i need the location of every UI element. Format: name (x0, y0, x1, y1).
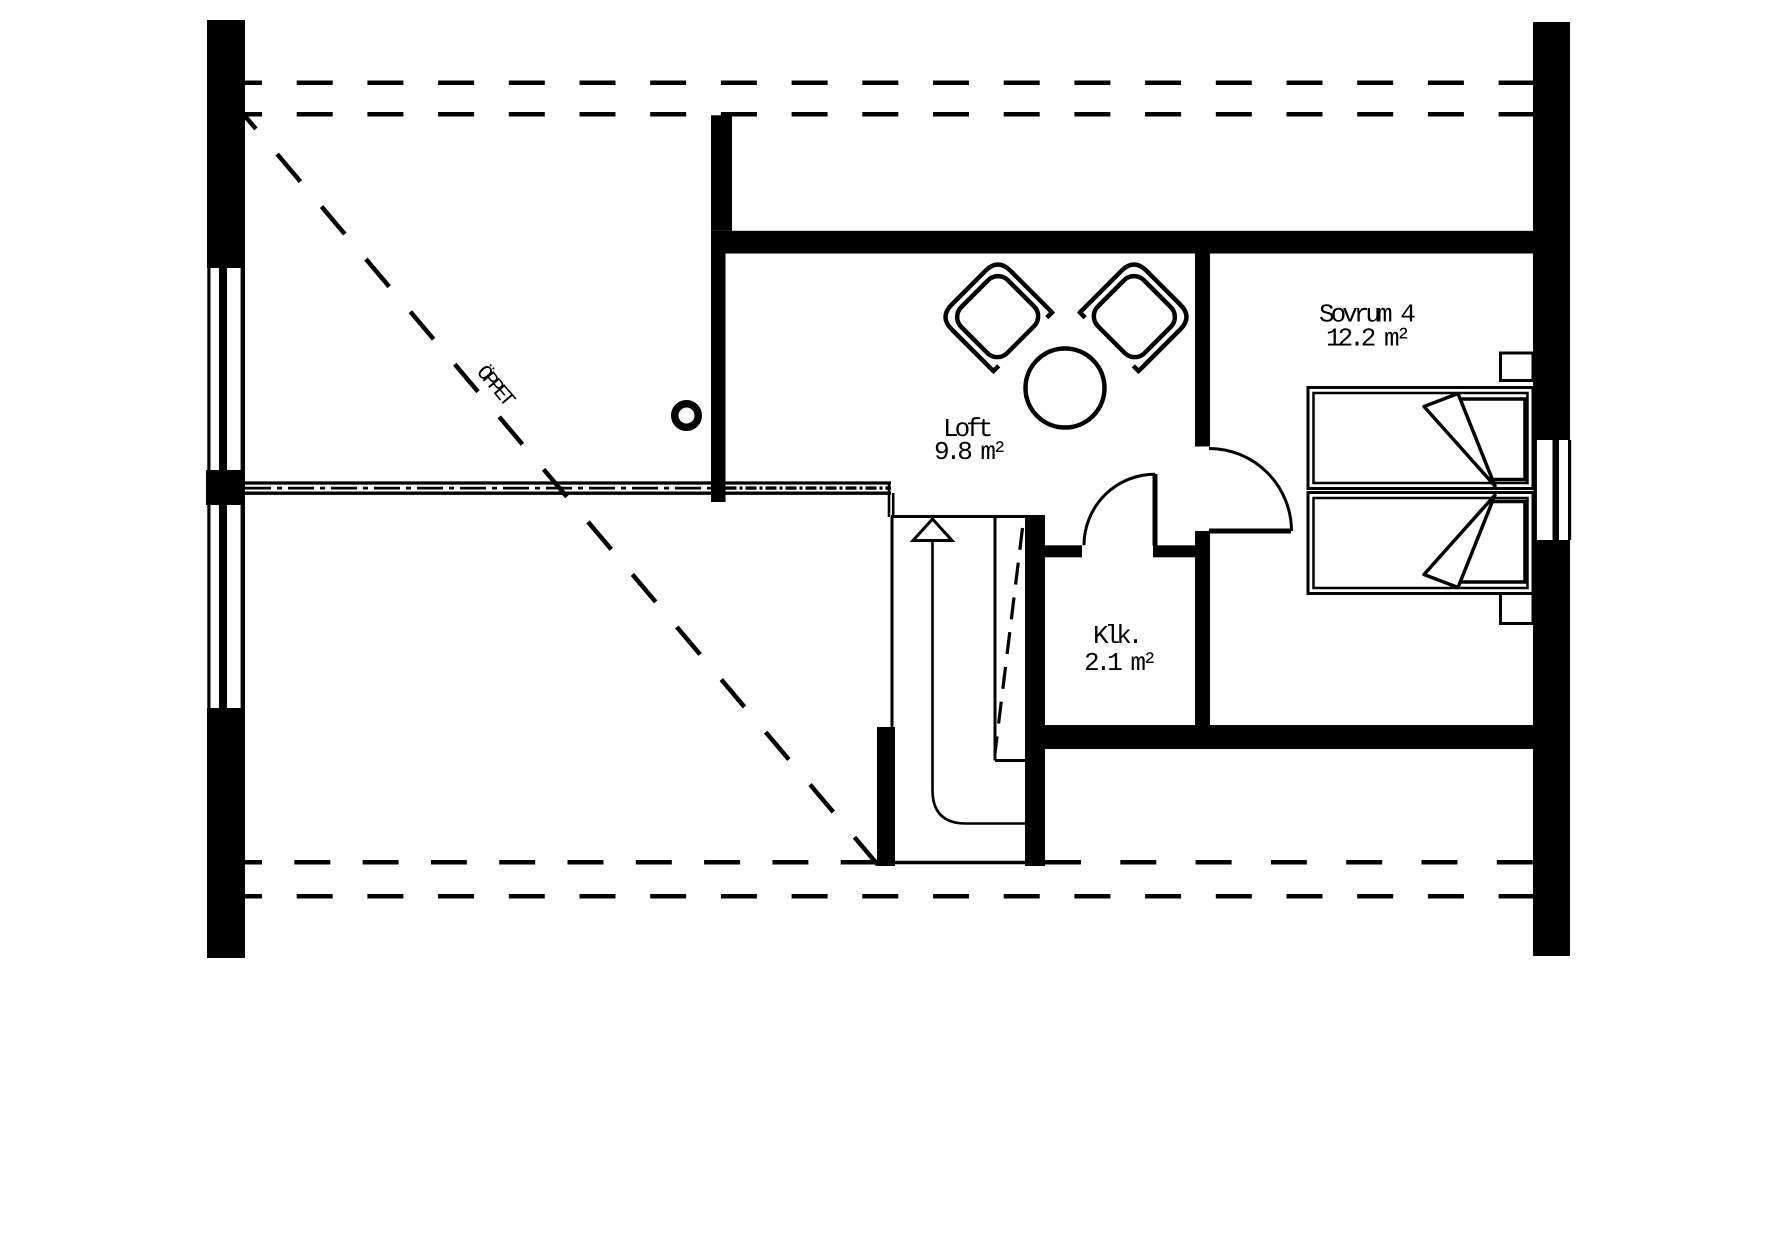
svg-text:Klk.: Klk. (1093, 621, 1139, 651)
svg-text:12.2 m²: 12.2 m² (1326, 324, 1408, 354)
svg-text:2.1 m²: 2.1 m² (1084, 648, 1154, 678)
svg-text:9.8 m²: 9.8 m² (934, 437, 1004, 467)
